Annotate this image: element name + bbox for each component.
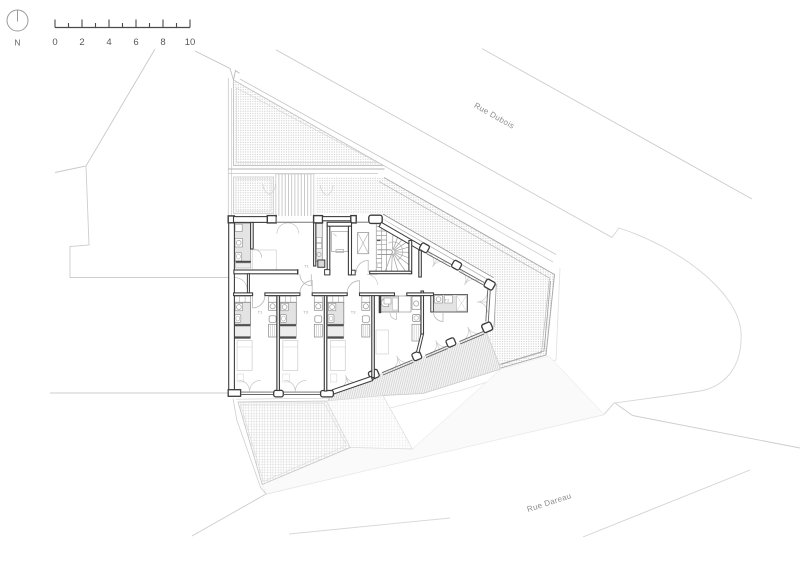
svg-text:6: 6 <box>133 37 138 48</box>
svg-text:2: 2 <box>79 37 84 48</box>
svg-text:0: 0 <box>52 37 57 48</box>
svg-text:T1: T1 <box>258 309 263 314</box>
svg-text:N: N <box>14 38 20 48</box>
svg-text:T3: T3 <box>351 309 356 314</box>
svg-text:8: 8 <box>160 37 165 48</box>
svg-text:T1: T1 <box>304 265 308 269</box>
svg-text:T3: T3 <box>303 309 308 314</box>
svg-text:T2: T2 <box>445 298 450 303</box>
svg-text:4: 4 <box>106 37 111 48</box>
svg-text:10: 10 <box>185 37 196 48</box>
